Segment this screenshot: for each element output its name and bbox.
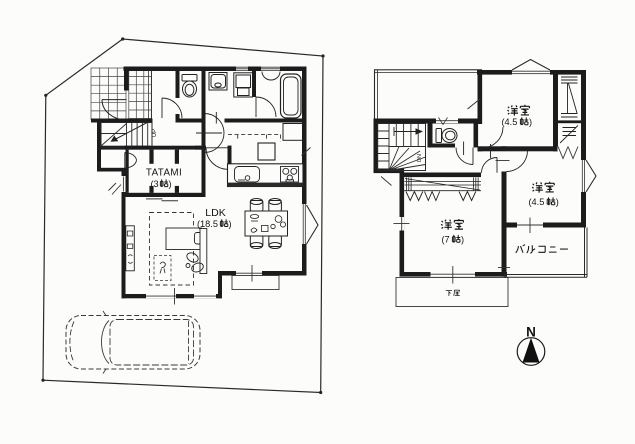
svg-text:): ) [229, 219, 232, 229]
svg-text:(4.5: (4.5 [502, 117, 518, 127]
svg-text:): ) [169, 179, 172, 189]
svg-text:N: N [526, 325, 536, 340]
svg-text:DN: DN [417, 154, 423, 162]
svg-text:): ) [529, 117, 532, 127]
svg-text:TATAMI: TATAMI [146, 168, 182, 179]
svg-text:LDK: LDK [205, 207, 225, 219]
svg-text:(3: (3 [151, 179, 159, 189]
svg-text:): ) [556, 197, 559, 207]
svg-text:(4.5: (4.5 [529, 197, 545, 207]
svg-text:): ) [461, 234, 464, 244]
svg-text:(7: (7 [442, 234, 450, 244]
svg-text:UP: UP [152, 129, 158, 137]
svg-text:(18.5: (18.5 [197, 219, 218, 229]
